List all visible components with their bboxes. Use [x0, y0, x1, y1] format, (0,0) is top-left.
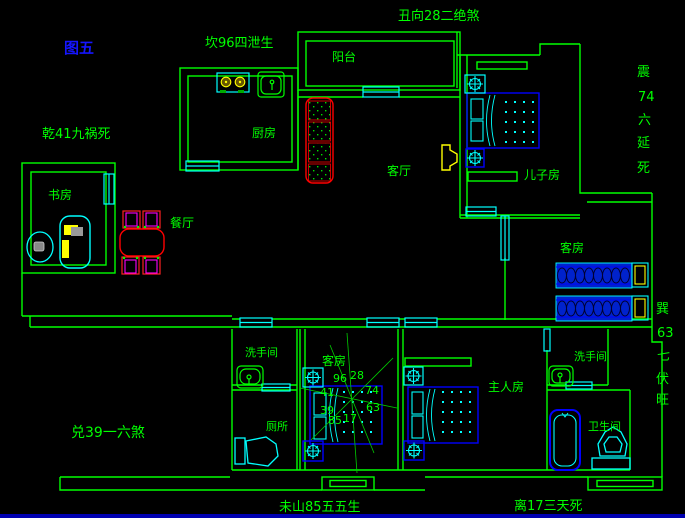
- compass-96: 96: [333, 372, 347, 385]
- label-living: 客厅: [387, 163, 411, 178]
- fengshui-label-dui: 兑39一六煞: [71, 425, 145, 441]
- zhen-char3: 延: [637, 136, 650, 151]
- xun-num: 63: [657, 326, 674, 341]
- fengshui-label-chou: 丑向28二绝煞: [398, 8, 480, 24]
- fengshui-label-li: 离17三天死: [514, 498, 583, 514]
- computer-monitor: [71, 227, 83, 236]
- label-bathroom-east: 卫生间: [588, 419, 621, 433]
- zhen-char4: 死: [637, 161, 650, 176]
- xun-char2: 七: [657, 349, 670, 364]
- floorplan-canvas[interactable]: 图五 坎96四泄生 丑向28二绝煞 乾41九祸死 兑39一六煞 未山85五五生 …: [0, 0, 685, 518]
- compass-74: 74: [365, 384, 379, 397]
- compass-17: 17: [343, 412, 357, 425]
- label-study: 书房: [48, 187, 72, 202]
- label-son-bedroom: 儿子房: [524, 167, 560, 182]
- zhen-char2: 六: [638, 113, 651, 128]
- label-guest-center: 客房: [322, 353, 346, 368]
- sofa: [306, 98, 333, 183]
- compass-63: 63: [366, 401, 380, 414]
- floorplan-drawing: 图五 坎96四泄生 丑向28二绝煞 乾41九祸死 兑39一六煞 未山85五五生 …: [0, 0, 685, 518]
- zhen-char: 震: [637, 65, 650, 80]
- bottom-window-edge: [0, 514, 685, 518]
- label-dining: 餐厅: [170, 215, 194, 230]
- xun-char: 巽: [656, 302, 669, 317]
- compass-28: 28: [350, 369, 364, 382]
- label-balcony: 阳台: [332, 49, 356, 64]
- zhen-num: 74: [638, 90, 655, 105]
- label-toilet-west: 厕所: [266, 420, 288, 433]
- fengshui-label-kan: 坎96四泄生: [205, 36, 274, 51]
- label-master-bedroom: 主人房: [488, 379, 524, 394]
- label-washroom-east: 洗手间: [574, 349, 607, 363]
- fengshui-label-wei: 未山85五五生: [279, 500, 361, 515]
- fengshui-label-qian: 乾41九祸死: [42, 127, 111, 142]
- computer-tower: [62, 240, 69, 258]
- compass-85: 85: [328, 414, 342, 427]
- xun-char4: 旺: [656, 393, 669, 408]
- compass-41: 41: [320, 386, 334, 399]
- figure-label: 图五: [64, 39, 94, 57]
- label-guest-east: 客房: [560, 240, 584, 255]
- label-kitchen: 厨房: [252, 125, 276, 140]
- xun-char3: 伏: [656, 372, 669, 387]
- label-washroom-west: 洗手间: [245, 345, 278, 359]
